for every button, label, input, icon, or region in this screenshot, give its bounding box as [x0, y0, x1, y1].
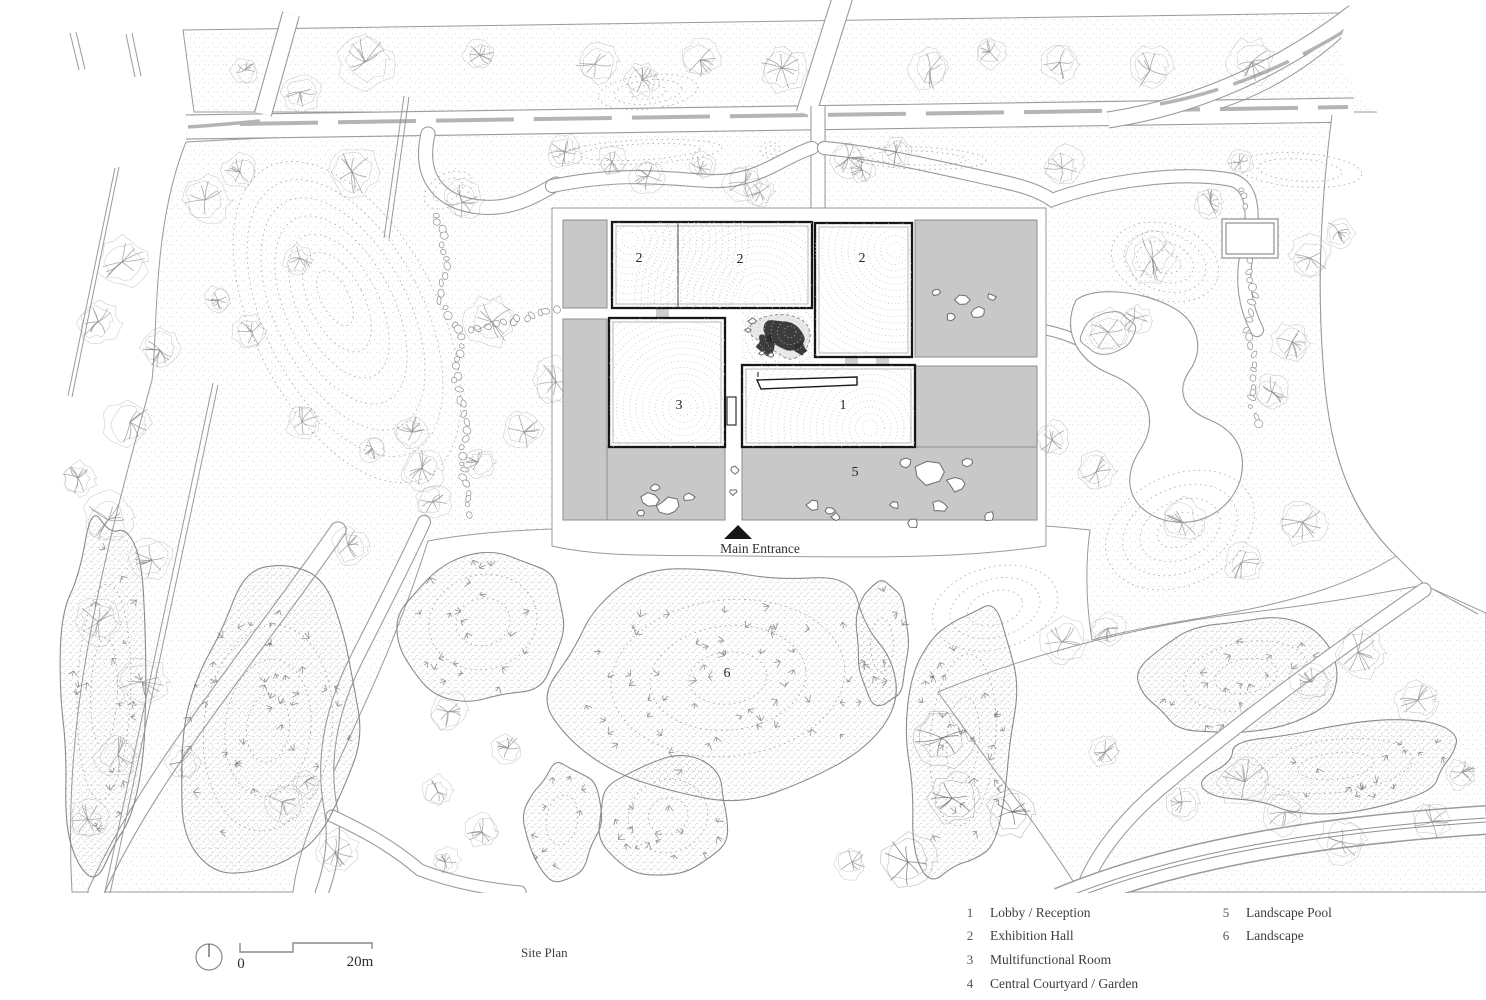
drawing-title: Site Plan	[521, 945, 568, 960]
site-plan-canvas: 2 2 2 3 1 4 5 6 Main Entrance 0 20m Site…	[0, 0, 1486, 1000]
corridor-door	[727, 397, 736, 425]
legend-label: Landscape	[1246, 928, 1304, 943]
plaza-paving	[563, 319, 607, 520]
legend-label: Landscape Pool	[1246, 905, 1332, 920]
legend-num: 4	[967, 976, 974, 991]
label-multifunctional-room: 3	[676, 398, 683, 413]
label-lobby: 1	[840, 398, 847, 413]
legend-label: Exhibition Hall	[990, 928, 1074, 943]
label-exhibition-hall: 2	[859, 251, 866, 266]
main-entrance-label: Main Entrance	[720, 541, 800, 556]
scale-start: 0	[237, 956, 245, 972]
legend-label: Multifunctional Room	[990, 952, 1112, 967]
label-central-courtyard: 4	[766, 332, 773, 347]
plaza-paving	[915, 220, 1037, 357]
label-exhibition-hall: 2	[737, 252, 744, 267]
legend-num: 2	[967, 928, 974, 943]
room-multifunctional	[609, 318, 725, 447]
legend-num: 5	[1223, 905, 1230, 920]
legend-label: Central Courtyard / Garden	[990, 976, 1138, 991]
plaza-paving	[563, 220, 607, 308]
legend-num: 6	[1223, 928, 1230, 943]
label-landscape-pool: 5	[852, 465, 859, 480]
legend-label: Lobby / Reception	[990, 905, 1091, 920]
legend-num: 1	[967, 905, 974, 920]
site-plan-sheet: 2 2 2 3 1 4 5 6 Main Entrance 0 20m Site…	[0, 0, 1486, 1000]
label-landscape: 6	[724, 666, 731, 681]
label-exhibition-hall: 2	[636, 251, 643, 266]
plaza-paving	[742, 447, 1037, 520]
legend-num: 3	[967, 952, 974, 967]
scale-end: 20m	[347, 954, 374, 970]
